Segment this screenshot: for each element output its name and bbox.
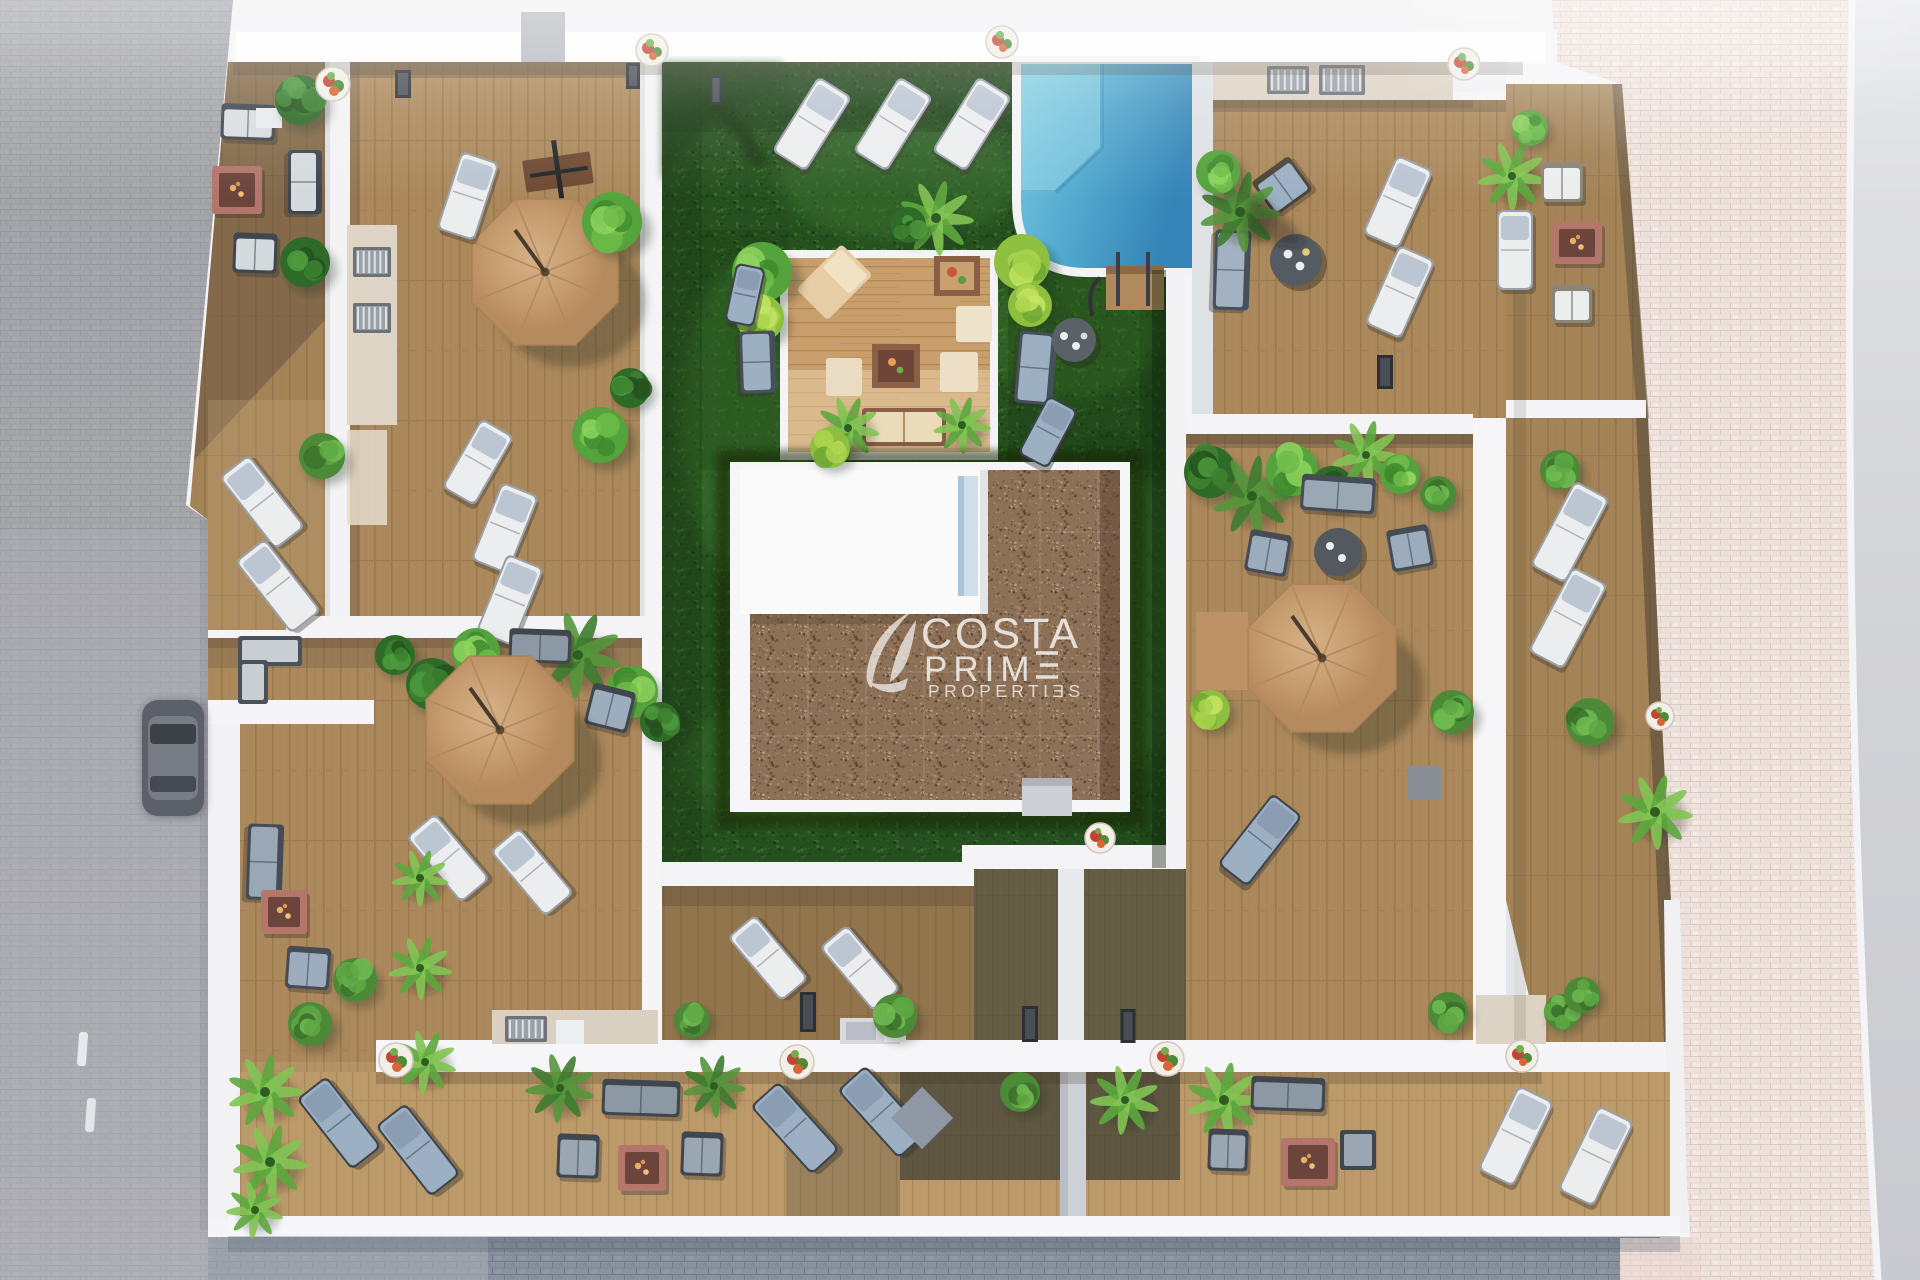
svg-text:PROPERTIƎS: PROPERTIƎS bbox=[928, 681, 1085, 701]
